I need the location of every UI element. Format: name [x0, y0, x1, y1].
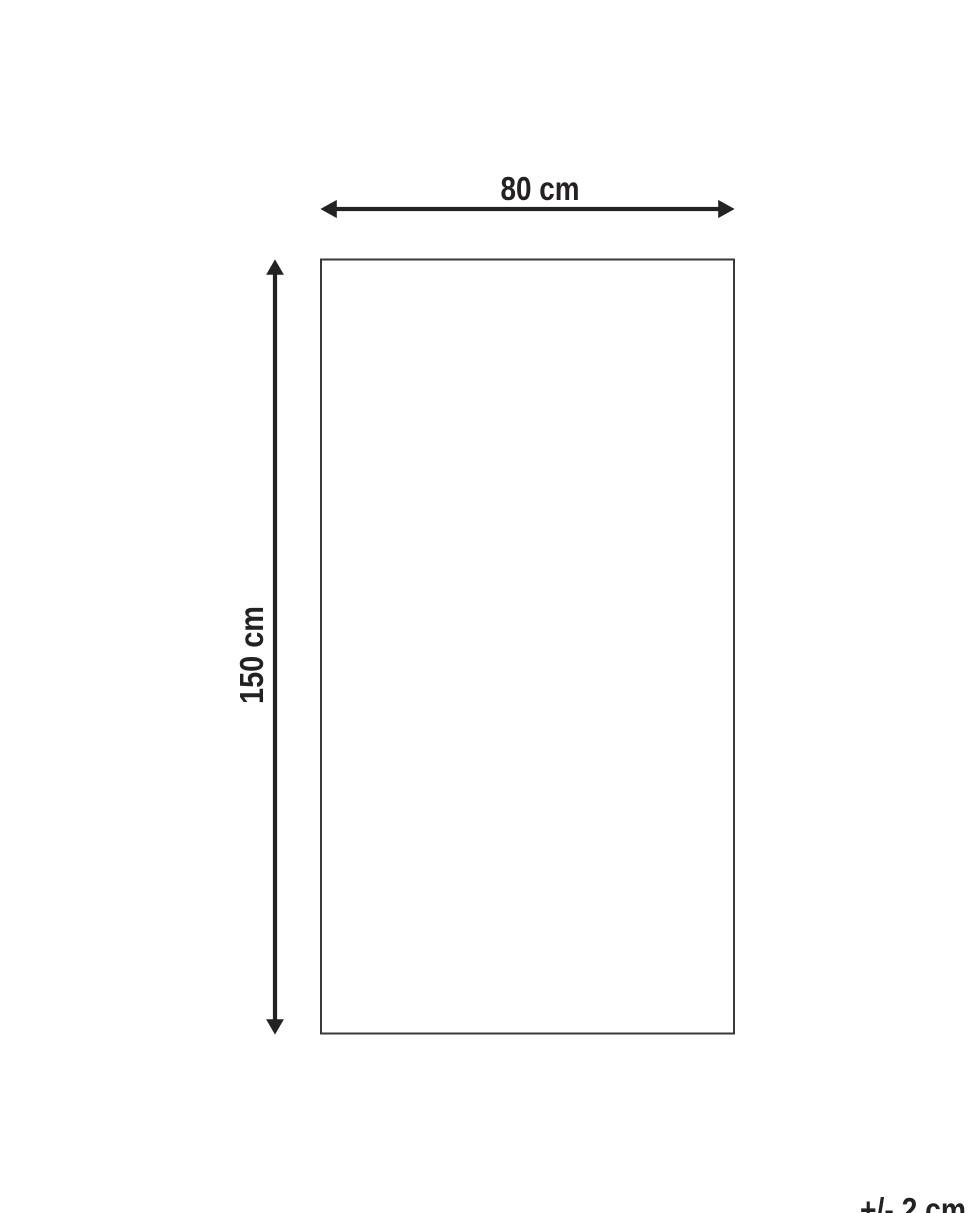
svg-text:150 cm: 150 cm [233, 606, 270, 704]
svg-text:80 cm: 80 cm [501, 170, 580, 207]
svg-text:+/- 2 cm: +/- 2 cm [860, 1191, 966, 1213]
